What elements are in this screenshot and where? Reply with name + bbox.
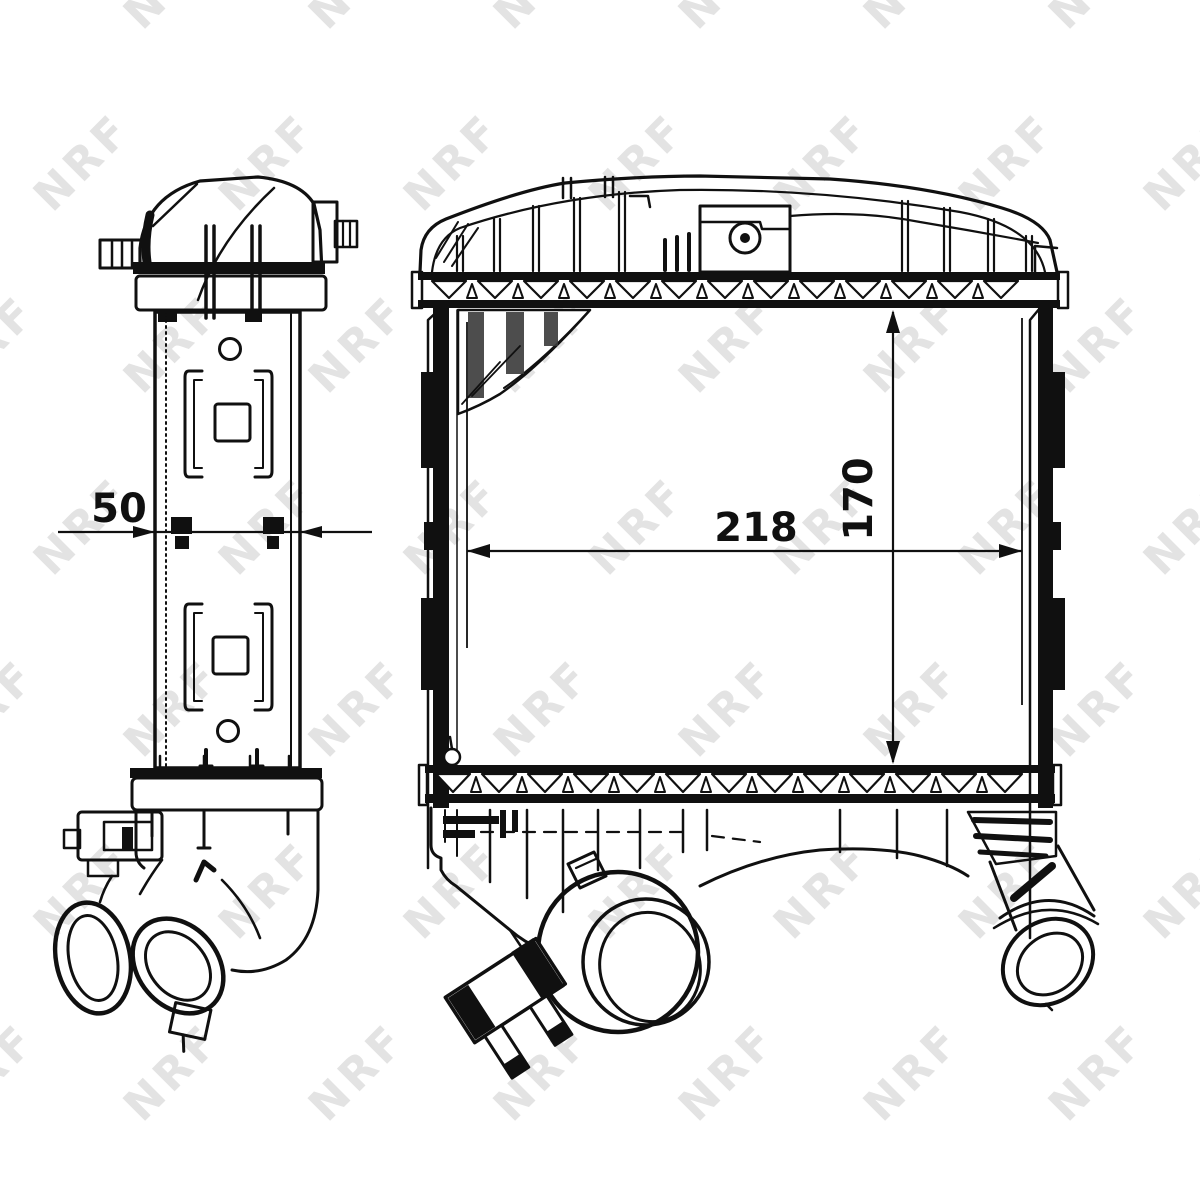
dimension-height: 170 <box>836 310 900 764</box>
crimp-tooth <box>892 281 926 298</box>
crimp-tooth <box>789 284 799 298</box>
crimp-end-cap <box>419 765 427 805</box>
dimension-arrow <box>467 544 490 558</box>
bracket-left-inner <box>194 613 202 701</box>
crimp-bottom-teeth <box>436 774 1022 792</box>
pipe-inner <box>61 911 125 1005</box>
crimp-top-rail <box>425 765 1055 773</box>
bottom-tank-curve <box>100 876 112 902</box>
bracket-step <box>700 222 790 229</box>
crimp-tooth <box>697 284 707 298</box>
hatch-strip <box>506 312 524 374</box>
crimp-top-rail <box>418 272 1060 280</box>
center-pipe-rim <box>583 899 709 1025</box>
crimp-tooth <box>743 284 753 298</box>
crimp-tooth <box>973 284 983 298</box>
crimp-tooth <box>927 284 937 298</box>
front-view <box>412 176 1110 1085</box>
bracket-window <box>215 404 250 441</box>
crimp-tooth <box>846 281 880 298</box>
bottom-tank-edge <box>431 808 542 950</box>
dimension-depth: 50 <box>58 486 372 538</box>
side-rib <box>421 598 433 690</box>
crimp-tooth <box>609 777 619 792</box>
crimp-tooth <box>616 281 650 298</box>
product-drawing-canvas: NRFNRFNRFNRFNRFNRFNRFNRFNRFNRFNRFNRFNRFN… <box>0 0 1200 1200</box>
dimension-label-depth: 50 <box>91 486 147 532</box>
technical-drawing: 50 218 170 <box>0 0 1200 1200</box>
crimp-tooth <box>478 281 512 298</box>
crimp-tooth <box>984 281 1018 298</box>
bracket-right-inner <box>255 613 263 701</box>
clamp-screw <box>1014 866 1052 898</box>
pipe-opening-right <box>114 900 242 1031</box>
pipe-boss <box>568 852 606 888</box>
crimp-tooth <box>800 281 834 298</box>
dimension-label-width: 218 <box>714 505 798 551</box>
crimp-tooth <box>793 777 803 792</box>
crimp-tooth <box>938 281 972 298</box>
dimension-arrow <box>999 544 1022 558</box>
bottom-bracket-pin <box>122 827 133 850</box>
crimp-tooth <box>528 774 562 792</box>
crimp-tooth <box>620 774 654 792</box>
stub-body <box>169 1003 210 1040</box>
crimp-tooth <box>524 281 558 298</box>
crimp-top-teeth <box>432 281 1018 298</box>
crimp-tooth <box>977 777 987 792</box>
bottom-tank-edge <box>700 849 968 886</box>
crimp-tooth <box>432 281 466 298</box>
drain-hook <box>444 749 460 765</box>
mount-hole <box>220 339 241 360</box>
crimp-tooth <box>563 777 573 792</box>
crimp-tooth <box>881 284 891 298</box>
dimension-width: 218 <box>467 318 1022 705</box>
crimp-tooth <box>517 777 527 792</box>
crimp-bottom-rail <box>425 794 1055 803</box>
side-rib <box>1053 598 1065 690</box>
top-header-plate <box>136 276 326 310</box>
tank-dark-bar <box>512 810 518 832</box>
bottom-tank-edge <box>232 810 318 972</box>
side-rib <box>1053 522 1061 550</box>
bottom-header-plate <box>132 778 322 810</box>
crimp-tooth <box>708 281 742 298</box>
pipe-outer <box>46 896 140 1020</box>
mount-hole <box>218 721 239 742</box>
top-tank-ribs <box>457 192 1032 271</box>
pipe-opening-left <box>46 896 140 1020</box>
side-pin <box>267 536 279 549</box>
pipe-outer <box>114 900 242 1031</box>
pipe-inner <box>132 919 224 1013</box>
crimp-tooth <box>835 284 845 298</box>
right-pipe-bar <box>980 852 1046 856</box>
bracket-hole-center <box>740 233 750 243</box>
clip-mark <box>196 862 214 880</box>
crimp-tooth <box>885 777 895 792</box>
right-pipe-bar <box>976 836 1050 840</box>
crimp-tooth <box>655 777 665 792</box>
dimension-arrow <box>300 526 322 538</box>
top-crimp-band <box>133 262 325 274</box>
dimension-label-height: 170 <box>836 457 882 541</box>
crimp-tooth <box>467 284 477 298</box>
bottom-bracket-tab <box>88 860 118 876</box>
side-plate-left <box>433 308 449 808</box>
top-tank-seam-curve <box>198 188 274 300</box>
crimp-tooth <box>570 281 604 298</box>
bracket-left-inner <box>194 380 202 468</box>
stub-tick <box>180 1035 187 1051</box>
crimp-tooth <box>754 281 788 298</box>
crimp-bottom-rail <box>418 300 1060 308</box>
bottom-tank-curve <box>222 880 260 938</box>
bracket-right-inner <box>255 380 263 468</box>
crimp-tooth <box>662 281 696 298</box>
side-rib <box>421 372 433 468</box>
top-tank-inner-line <box>432 190 1045 272</box>
top-tank-outline <box>140 177 322 272</box>
tank-dashed-line <box>712 836 760 842</box>
bottom-bracket <box>78 812 162 860</box>
crimp-tooth <box>942 774 976 792</box>
side-rib <box>424 522 433 550</box>
right-pipe-wall <box>1058 846 1094 910</box>
crimp-tooth <box>747 777 757 792</box>
bracket-window <box>213 637 248 674</box>
hatch-strip <box>544 312 558 346</box>
crimp-tooth <box>513 284 523 298</box>
dimension-arrow <box>886 741 900 764</box>
crimp-tooth <box>931 777 941 792</box>
bottom-tank-curve <box>140 860 162 894</box>
crimp-tooth <box>850 774 884 792</box>
crimp-tooth <box>574 774 608 792</box>
hatch-line <box>436 222 458 258</box>
crimp-tooth <box>482 774 516 792</box>
outlet-connector <box>444 937 592 1085</box>
right-pipe-bar <box>974 820 1050 822</box>
crimp-tooth <box>666 774 700 792</box>
crimp-tooth <box>839 777 849 792</box>
side-rib <box>1053 372 1065 468</box>
crimp-tooth <box>651 284 661 298</box>
side-plate-right <box>1038 308 1053 808</box>
crimp-tooth <box>712 774 746 792</box>
crimp-end-cap <box>1053 765 1061 805</box>
side-view <box>46 177 357 1055</box>
crimp-tooth <box>896 774 930 792</box>
tank-dark-bar <box>500 810 506 838</box>
crimp-tooth <box>605 284 615 298</box>
crimp-tooth <box>559 284 569 298</box>
drain-hook-tail <box>450 737 452 749</box>
crimp-tooth <box>804 774 838 792</box>
dimension-arrow <box>886 310 900 333</box>
crimp-tooth <box>758 774 792 792</box>
crimp-tooth <box>988 774 1022 792</box>
bracket-step <box>630 196 650 207</box>
crimp-tooth <box>471 777 481 792</box>
tank-seam-wavy <box>790 214 1038 243</box>
crimp-tooth <box>701 777 711 792</box>
side-pin <box>175 536 189 549</box>
